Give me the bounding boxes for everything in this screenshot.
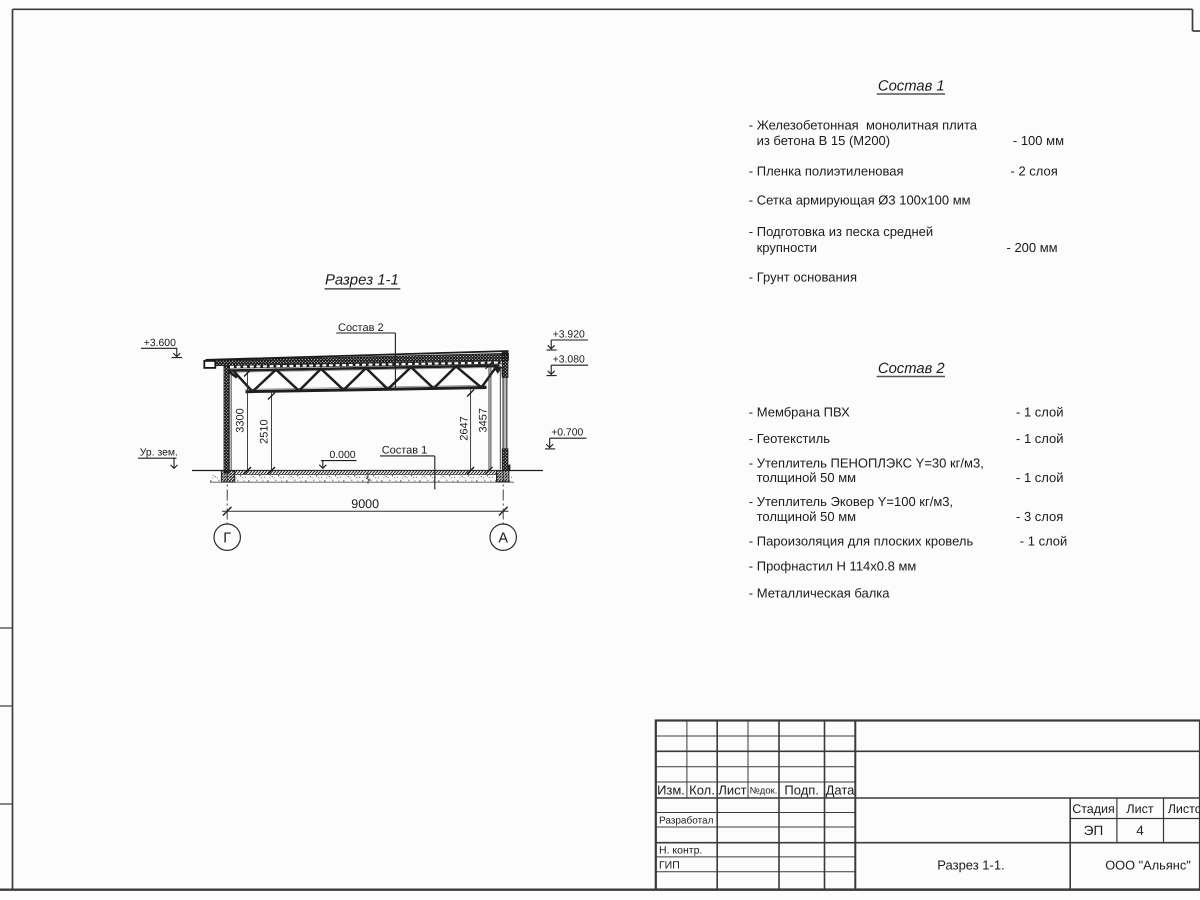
svg-text:Листов: Листов: [1168, 802, 1200, 816]
svg-text:3457: 3457: [478, 408, 490, 432]
svg-text:крупности: крупности: [757, 240, 817, 255]
svg-text:ЭП: ЭП: [1084, 823, 1103, 838]
svg-text:толщиной 50 мм: толщиной 50 мм: [757, 470, 857, 485]
svg-text:- 100 мм: - 100 мм: [1013, 133, 1064, 148]
svg-text:- 3 слоя: - 3 слоя: [1016, 509, 1063, 524]
svg-text:А: А: [498, 530, 508, 546]
svg-text:+3.600: +3.600: [144, 338, 176, 349]
svg-text:- 200 мм: - 200 мм: [1007, 240, 1058, 255]
svg-text:9000: 9000: [351, 497, 379, 511]
svg-text:из бетона В 15 (М200): из бетона В 15 (М200): [757, 133, 891, 148]
svg-text:Кол.: Кол.: [689, 783, 715, 798]
svg-text:Состав 2: Состав 2: [878, 361, 946, 377]
svg-text:+3.920: +3.920: [553, 330, 585, 341]
svg-text:Разрез 1-1.: Разрез 1-1.: [937, 858, 1004, 873]
svg-text:Н. контр.: Н. контр.: [659, 844, 702, 856]
svg-text:Ур. зем.: Ур. зем.: [140, 448, 178, 459]
svg-text:толщиной 50 мм: толщиной 50 мм: [757, 509, 857, 524]
svg-text:- Сетка армирующая Ø3 100х100: - Сетка армирующая Ø3 100х100 мм: [749, 193, 971, 208]
svg-text:ГИП: ГИП: [659, 859, 680, 871]
svg-text:Изм.: Изм.: [657, 783, 685, 798]
svg-text:Состав 1: Состав 1: [878, 78, 945, 94]
svg-text:- Грунт основания: - Грунт основания: [749, 269, 857, 284]
svg-text:- Подготовка из песка средней: - Подготовка из песка средней: [749, 224, 933, 239]
svg-text:4: 4: [1136, 823, 1144, 838]
svg-text:- 1 слой: - 1 слой: [1016, 431, 1064, 446]
svg-text:- Утеплитель Эковер Y=100 кг/м: - Утеплитель Эковер Y=100 кг/м3,: [749, 494, 953, 509]
svg-text:Состав 2: Состав 2: [338, 322, 384, 334]
svg-text:- 2 слоя: - 2 слоя: [1011, 164, 1058, 179]
svg-text:- Металлическая балка: - Металлическая балка: [749, 585, 890, 600]
svg-text:Лист: Лист: [718, 783, 746, 798]
svg-text:ООО "Альянс": ООО "Альянс": [1105, 858, 1191, 873]
svg-text:+3.080: +3.080: [553, 355, 585, 366]
svg-text:Разработал: Разработал: [659, 816, 714, 827]
svg-text:- Мембрана ПВХ: - Мембрана ПВХ: [749, 404, 850, 419]
svg-text:Лист: Лист: [1126, 802, 1153, 816]
svg-text:- Утеплитель ПЕНОПЛЭКС Y=30 кг: - Утеплитель ПЕНОПЛЭКС Y=30 кг/м3,: [749, 456, 984, 471]
svg-text:Стадия: Стадия: [1072, 802, 1115, 816]
svg-text:2510: 2510: [258, 419, 270, 443]
svg-text:- Пленка полиэтиленовая: - Пленка полиэтиленовая: [749, 164, 904, 179]
svg-text:- 1 слой: - 1 слой: [1020, 533, 1068, 548]
svg-text:0.000: 0.000: [330, 450, 356, 461]
svg-text:3300: 3300: [235, 408, 247, 432]
svg-text:- Профнастил Н 114х0.8 мм: - Профнастил Н 114х0.8 мм: [749, 558, 917, 573]
svg-text:+0.700: +0.700: [551, 427, 583, 438]
svg-text:Состав 1: Состав 1: [382, 444, 428, 456]
svg-text:- Железобетонная монолитная п: - Железобетонная монолитная плита: [749, 118, 978, 133]
svg-text:- Пароизоляция для плоских кро: - Пароизоляция для плоских кровель: [749, 533, 974, 548]
svg-text:- 1 слой: - 1 слой: [1016, 404, 1064, 419]
svg-text:2647: 2647: [459, 416, 471, 440]
svg-text:Разрез 1-1: Разрез 1-1: [325, 273, 399, 289]
svg-text:Г: Г: [223, 530, 231, 546]
svg-text:Подп.: Подп.: [784, 783, 819, 798]
svg-text:- 1 слой: - 1 слой: [1016, 470, 1064, 485]
svg-text:- Геотекстиль: - Геотекстиль: [749, 431, 830, 446]
svg-text:Дата: Дата: [826, 783, 856, 798]
svg-text:№док.: №док.: [750, 786, 778, 797]
